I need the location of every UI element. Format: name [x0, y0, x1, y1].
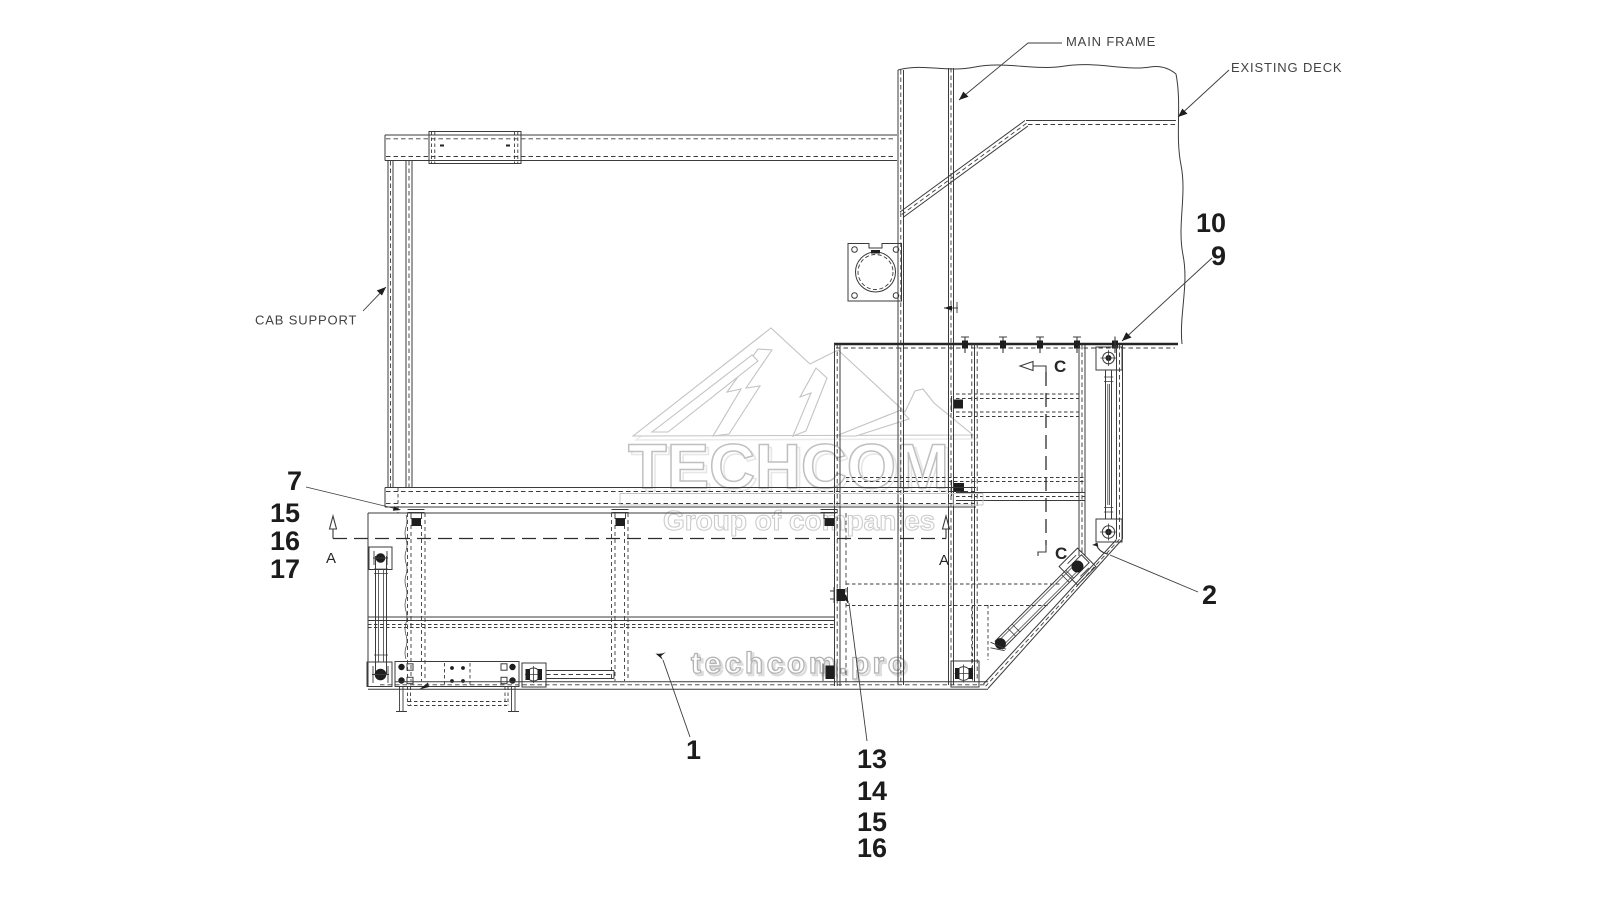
svg-text:A: A [939, 552, 949, 569]
svg-text:16: 16 [857, 833, 887, 863]
svg-text:10: 10 [1196, 208, 1226, 238]
svg-text:Group of companies: Group of companies [663, 505, 935, 536]
svg-text:13: 13 [857, 744, 887, 774]
svg-text:techcom.pro: techcom.pro [691, 647, 910, 680]
svg-text:14: 14 [857, 776, 887, 806]
svg-text:16: 16 [270, 526, 300, 556]
svg-text:C: C [1055, 544, 1067, 563]
svg-text:2: 2 [1202, 580, 1217, 610]
svg-text:A: A [326, 550, 336, 567]
svg-text:EXISTING DECK: EXISTING DECK [1231, 60, 1342, 75]
svg-text:17: 17 [270, 554, 300, 584]
svg-text:C: C [1054, 357, 1066, 376]
svg-text:9: 9 [1211, 241, 1226, 271]
svg-text:7: 7 [287, 466, 302, 496]
svg-text:MAIN FRAME: MAIN FRAME [1066, 34, 1156, 49]
svg-text:1: 1 [686, 735, 701, 765]
svg-text:15: 15 [270, 498, 300, 528]
svg-text:CAB SUPPORT: CAB SUPPORT [255, 313, 357, 328]
